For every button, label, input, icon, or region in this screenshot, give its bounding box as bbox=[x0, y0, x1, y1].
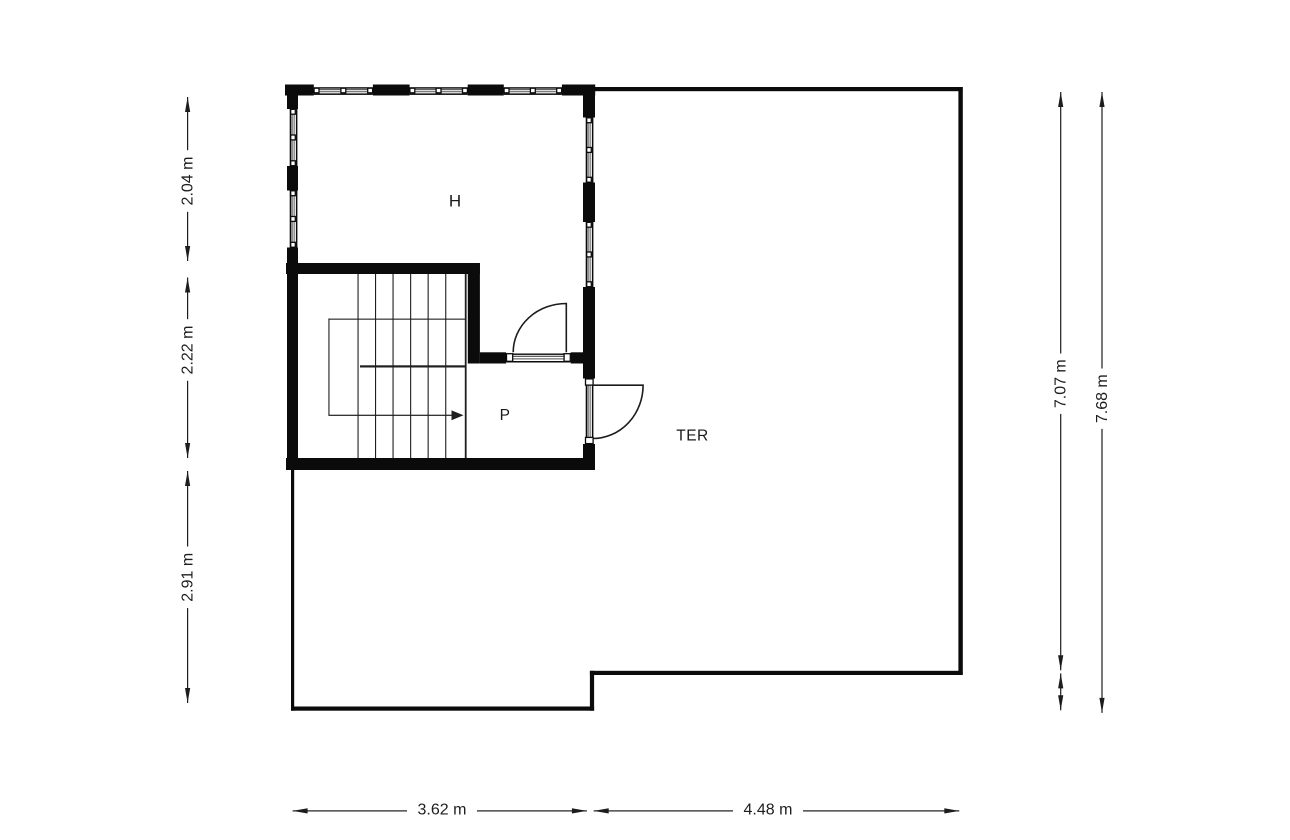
svg-text:2.22 m: 2.22 m bbox=[180, 326, 197, 375]
svg-text:2.91 m: 2.91 m bbox=[180, 553, 197, 602]
svg-text:P: P bbox=[500, 407, 510, 424]
svg-text:H: H bbox=[449, 192, 461, 211]
svg-text:TER: TER bbox=[676, 428, 709, 445]
svg-text:4.48 m: 4.48 m bbox=[744, 802, 793, 819]
svg-text:7.68 m: 7.68 m bbox=[1094, 374, 1111, 423]
svg-text:7.07 m: 7.07 m bbox=[1053, 359, 1070, 408]
svg-text:2.04 m: 2.04 m bbox=[180, 157, 197, 206]
svg-text:3.62 m: 3.62 m bbox=[418, 802, 467, 819]
